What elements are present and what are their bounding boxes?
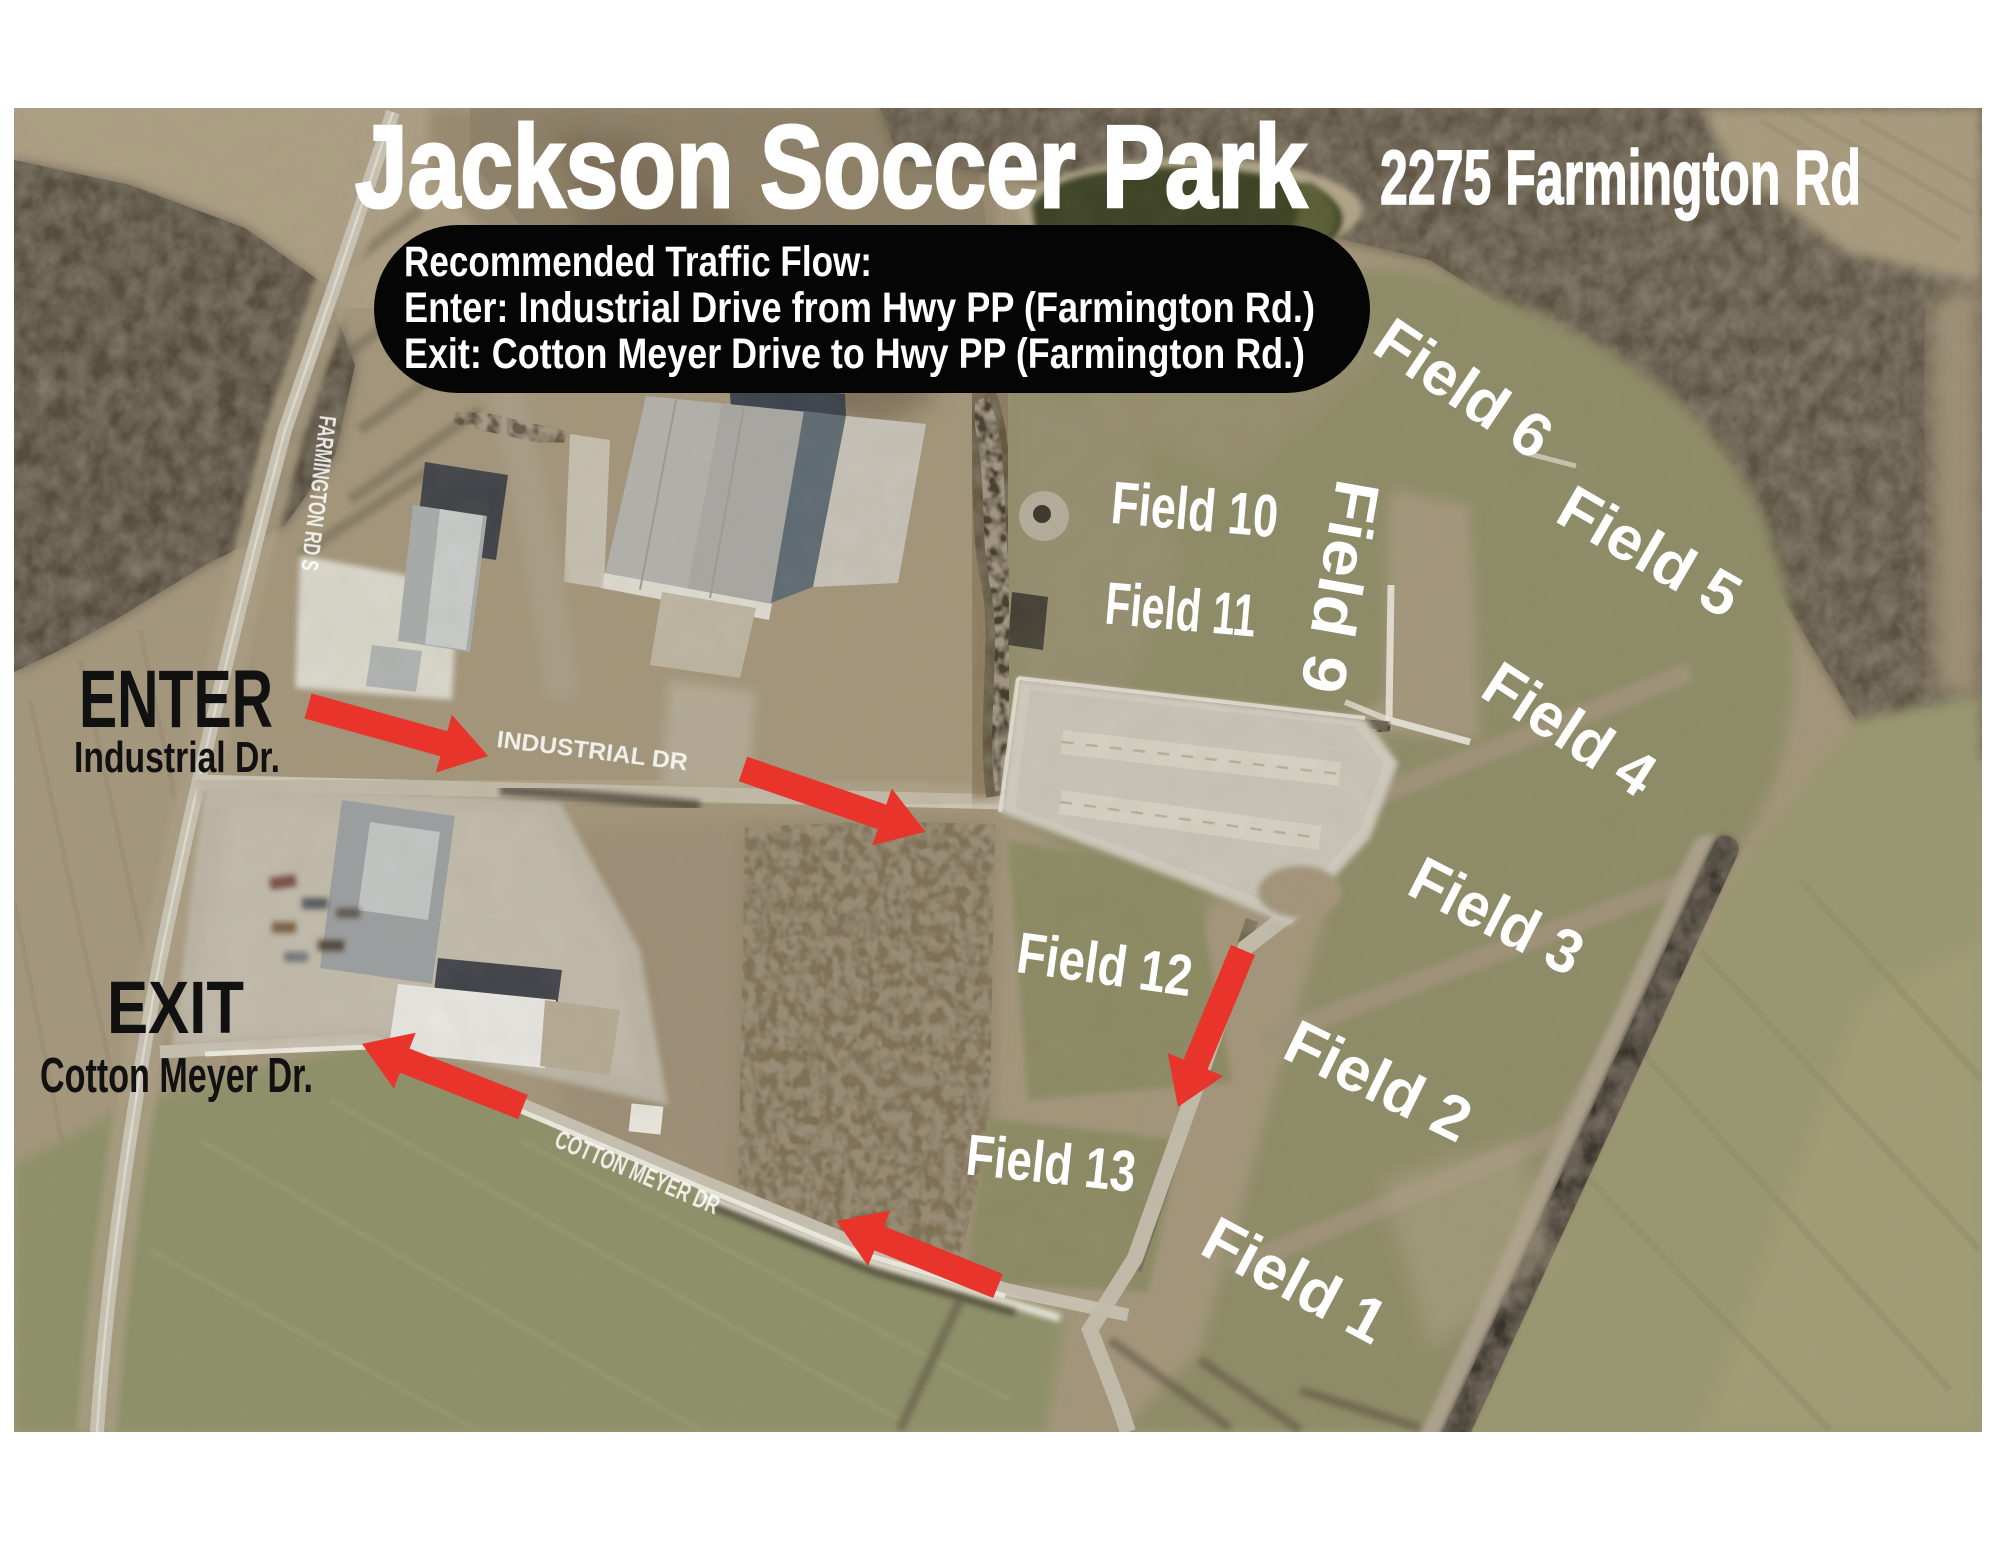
svg-text:Exit: Cotton Meyer Drive to Hw: Exit: Cotton Meyer Drive to Hwy PP (Farm… — [404, 330, 1305, 378]
svg-text:Field 11: Field 11 — [1103, 570, 1259, 650]
svg-text:Industrial Dr.: Industrial Dr. — [74, 733, 280, 782]
svg-text:Jackson Soccer Park: Jackson Soccer Park — [355, 101, 1308, 232]
svg-text:2275 Farmington Rd: 2275 Farmington Rd — [1380, 135, 1861, 221]
svg-text:Enter: Industrial Drive from H: Enter: Industrial Drive from Hwy PP (Far… — [404, 284, 1315, 332]
svg-text:Recommended Traffic Flow:: Recommended Traffic Flow: — [404, 238, 872, 286]
svg-text:ENTER: ENTER — [79, 654, 273, 745]
svg-text:Cotton Meyer Dr.: Cotton Meyer Dr. — [40, 1049, 313, 1103]
svg-text:EXIT: EXIT — [107, 966, 244, 1049]
